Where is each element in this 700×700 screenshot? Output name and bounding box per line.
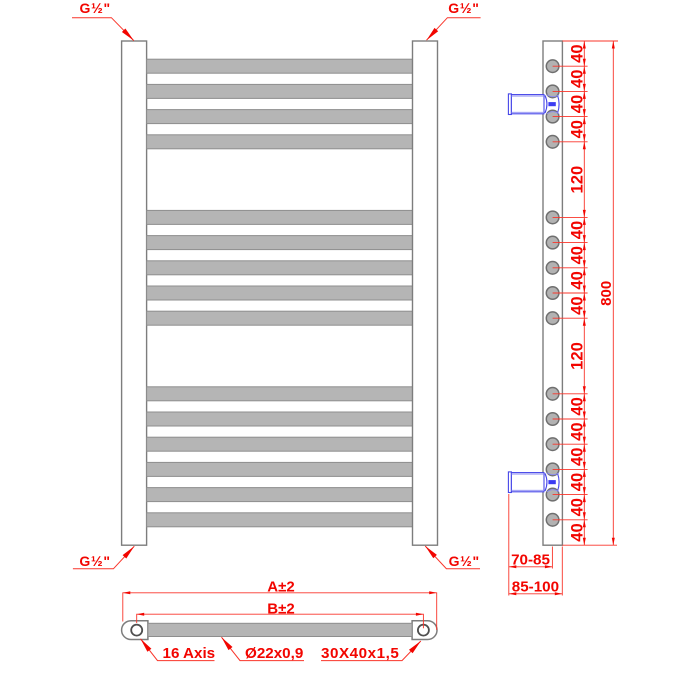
svg-text:A±2: A±2 [267, 578, 294, 595]
svg-text:B±2: B±2 [267, 600, 294, 617]
svg-text:40: 40 [568, 95, 587, 113]
svg-text:40: 40 [568, 473, 587, 491]
svg-text:40: 40 [568, 296, 587, 314]
svg-text:70-85: 70-85 [511, 552, 550, 569]
svg-text:40: 40 [568, 70, 587, 88]
svg-text:40: 40 [568, 397, 587, 415]
svg-text:16 Axis: 16 Axis [163, 645, 216, 662]
svg-text:30X40x1,5: 30X40x1,5 [321, 645, 399, 662]
svg-text:40: 40 [568, 221, 587, 239]
svg-text:120: 120 [568, 166, 587, 194]
svg-text:Ø22x0,9: Ø22x0,9 [245, 645, 303, 662]
svg-text:G½": G½" [80, 0, 111, 16]
svg-text:40: 40 [568, 44, 587, 62]
svg-text:40: 40 [568, 448, 587, 466]
svg-text:G½": G½" [79, 553, 110, 569]
svg-text:40: 40 [568, 120, 587, 138]
svg-text:G½": G½" [448, 0, 479, 16]
svg-text:40: 40 [568, 422, 587, 440]
svg-text:40: 40 [568, 498, 587, 516]
svg-text:85-100: 85-100 [512, 579, 559, 596]
svg-text:G½": G½" [449, 553, 480, 569]
svg-text:800: 800 [598, 281, 615, 306]
svg-text:40: 40 [568, 523, 587, 541]
svg-text:40: 40 [568, 246, 587, 264]
svg-text:120: 120 [568, 342, 587, 370]
svg-text:40: 40 [568, 271, 587, 289]
